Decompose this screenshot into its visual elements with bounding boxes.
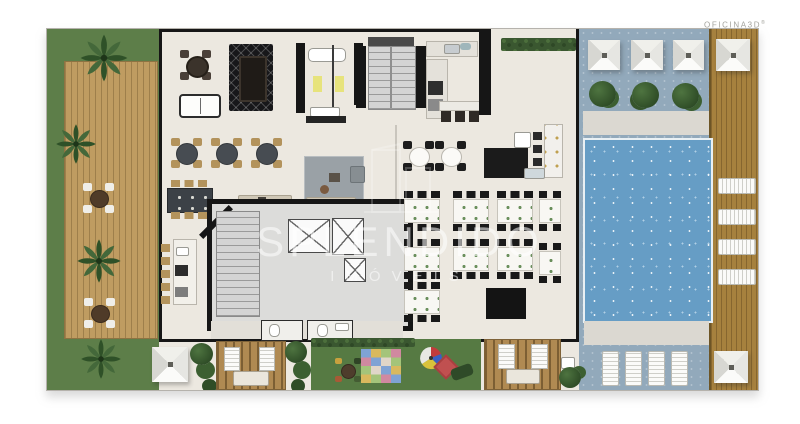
kitchen-wall — [479, 32, 491, 115]
oven — [175, 287, 188, 297]
palm-tree-icon — [54, 122, 98, 166]
poker-table — [186, 56, 209, 78]
pergola-sofa — [233, 371, 269, 386]
bar-counter — [544, 124, 563, 178]
chair-row — [497, 239, 533, 246]
floorplan — [46, 28, 759, 391]
palm-tree-icon — [79, 337, 123, 381]
pool-table — [239, 56, 267, 102]
hedge-top — [501, 38, 576, 51]
banquet-table — [497, 199, 533, 223]
pergola — [216, 341, 286, 390]
chair-row — [453, 272, 489, 279]
garden-chairs — [83, 183, 92, 191]
chair-row — [404, 272, 440, 279]
restroom — [261, 320, 303, 341]
chair-row — [539, 243, 561, 250]
washbasin — [335, 323, 349, 331]
shaft-cell — [344, 258, 366, 282]
banquet-table — [453, 247, 489, 271]
sun-lounger — [602, 351, 619, 386]
dining-chairs — [171, 138, 180, 146]
stair-divider — [390, 46, 392, 108]
cabana — [588, 40, 620, 70]
sun-lounger — [718, 239, 756, 255]
armchair — [350, 166, 365, 183]
garden-table — [91, 305, 110, 323]
cabana — [714, 351, 748, 383]
party-round-set — [435, 141, 466, 171]
stair-wall — [416, 46, 426, 108]
banquet-table — [497, 247, 533, 271]
chair-row — [404, 224, 440, 231]
garden-table — [90, 190, 109, 208]
pergola-lounger — [498, 344, 515, 369]
bar-appliance — [514, 132, 531, 148]
shrub — [559, 367, 581, 388]
chair-row — [497, 224, 533, 231]
sun-lounger — [718, 178, 756, 194]
gourmet-bar — [484, 148, 528, 178]
core-staircase — [216, 211, 260, 317]
cabana — [673, 40, 704, 70]
chair-row — [404, 315, 440, 322]
long-dining-set — [165, 180, 213, 220]
sun-lounger — [671, 351, 688, 386]
chair-row — [404, 282, 440, 289]
sun-lounger — [718, 209, 756, 225]
chair-row — [497, 191, 533, 198]
banquet-table — [404, 247, 440, 271]
cabana — [631, 40, 663, 70]
party-round-set — [403, 141, 434, 171]
party-chairs — [435, 141, 444, 149]
dining-set — [211, 138, 242, 168]
vestibule-wall — [296, 43, 305, 113]
pool-walkway-bottom — [584, 321, 709, 345]
toilet — [269, 324, 280, 337]
floorplan-image: SPLENDIDO IMÓVEIS OFICINA3D® — [0, 0, 800, 424]
pergola-lounger — [224, 347, 240, 371]
banquet-table-set — [497, 191, 533, 231]
main-staircase — [368, 46, 416, 110]
sun-lounger — [718, 269, 756, 285]
island-sink — [176, 247, 189, 256]
banquet-table-set — [404, 191, 440, 231]
door-swing-marker — [313, 76, 322, 92]
chair-row — [171, 212, 207, 219]
chair-row — [539, 191, 561, 198]
sun-lounger — [648, 351, 665, 386]
banquet-table — [404, 199, 440, 223]
elevator-cell — [288, 219, 330, 253]
lawn-hedge — [311, 338, 415, 347]
brand-logo: OFICINA3D® — [704, 20, 764, 30]
garden-chairs — [84, 298, 93, 306]
coffee-table — [329, 173, 340, 182]
kids-chair — [335, 358, 342, 364]
kitchen-pass-counter — [439, 101, 481, 111]
banquet-table — [404, 290, 440, 314]
banquet-table-set — [497, 239, 533, 279]
sun-lounger — [625, 351, 642, 386]
swimming-pool — [583, 138, 713, 323]
brand-registered-mark: ® — [761, 20, 766, 26]
chair-row — [404, 239, 440, 246]
banquet-table — [539, 251, 561, 275]
pergola-lounger — [531, 344, 548, 369]
door-swing-marker — [335, 76, 344, 92]
dining-set — [171, 138, 202, 168]
garden-table-set — [83, 183, 114, 213]
party-round-table — [409, 147, 430, 167]
banquet-table — [539, 199, 561, 223]
cabana — [152, 347, 188, 382]
palm-tree-icon — [78, 32, 130, 84]
pergola-lounger — [259, 347, 275, 371]
cabana — [716, 39, 750, 71]
bar-register — [524, 168, 545, 179]
shrub — [672, 83, 699, 109]
kids-chair — [335, 376, 342, 382]
kids-table-set — [335, 358, 361, 383]
kitchen-sink — [444, 44, 460, 54]
toilet — [317, 324, 328, 337]
chair-row — [171, 180, 207, 187]
kids-chair — [354, 358, 361, 364]
pool-walkway-top — [583, 111, 709, 135]
dining-table — [216, 143, 238, 165]
chair-row — [453, 224, 489, 231]
kids-chair — [354, 376, 361, 382]
dining-set — [251, 138, 282, 168]
elevator-cell — [332, 218, 364, 255]
cooktop — [175, 265, 188, 276]
poker-table-set — [180, 50, 211, 80]
shrub — [589, 81, 616, 107]
party-chairs — [403, 141, 412, 149]
dining-table — [256, 143, 278, 165]
pergola — [484, 339, 561, 390]
banquet-table-set — [404, 239, 440, 279]
chair-row — [453, 239, 489, 246]
banquet-table-set — [453, 191, 489, 231]
bar-stools — [441, 111, 479, 122]
kitchen-item — [460, 43, 471, 50]
banquet-table-set-small — [539, 191, 561, 231]
banquet-table-set — [404, 282, 440, 322]
stove — [428, 81, 443, 95]
chair-row — [497, 272, 533, 279]
shrub — [190, 343, 213, 365]
chair-row — [539, 276, 561, 283]
stage — [486, 288, 526, 319]
pouf — [320, 185, 329, 194]
garden-table-set — [84, 298, 115, 328]
play-mat — [361, 349, 401, 383]
dining-chairs — [251, 138, 260, 146]
poker-chairs — [180, 50, 189, 58]
wall-top — [159, 29, 491, 32]
banquet-table-set — [453, 239, 489, 279]
island-stools — [161, 244, 170, 304]
palm-tree-icon — [75, 237, 123, 285]
stair-wall — [356, 46, 366, 108]
room-divider — [395, 125, 397, 199]
banquet-table — [453, 199, 489, 223]
dining-chairs — [211, 138, 220, 146]
pergola-sofa — [506, 369, 540, 384]
shrub — [285, 341, 307, 363]
dining-table — [176, 143, 198, 165]
shrub — [632, 82, 659, 108]
chair-row — [453, 191, 489, 198]
banquet-table-set-small — [539, 243, 561, 283]
brand-name: OFICINA3D — [704, 21, 761, 30]
chair-row — [539, 224, 561, 231]
entry-door — [308, 48, 346, 62]
chair-row — [404, 191, 440, 198]
entry-threshold — [306, 116, 346, 123]
kids-table — [341, 364, 356, 379]
ping-pong-table — [179, 94, 221, 118]
party-round-table — [441, 147, 462, 167]
